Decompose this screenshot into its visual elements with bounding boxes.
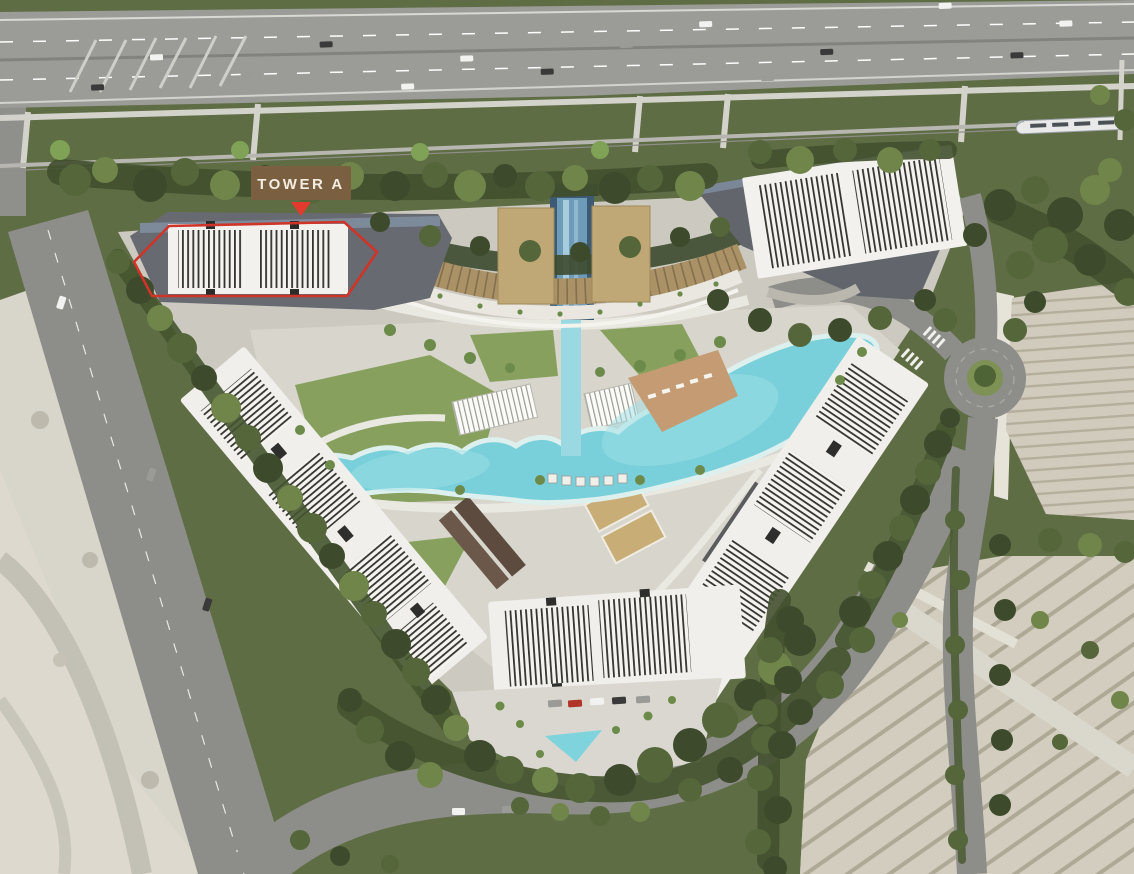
label-text: TOWER A (257, 176, 345, 193)
roundabout-island-tree (974, 365, 996, 387)
masterplan-scene: TOWER A (0, 0, 1134, 874)
aerial-masterplan: TOWER A (0, 0, 1134, 874)
